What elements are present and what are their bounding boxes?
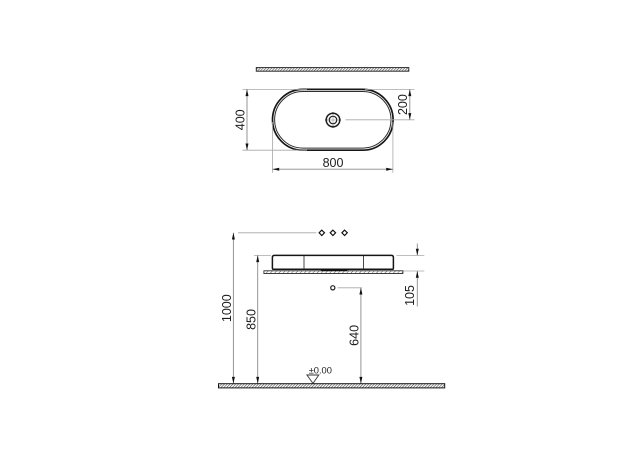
- svg-text:800: 800: [323, 156, 344, 170]
- svg-text:105: 105: [403, 285, 417, 306]
- svg-text:640: 640: [348, 325, 362, 346]
- svg-text:400: 400: [234, 109, 248, 130]
- svg-text:1000: 1000: [220, 294, 234, 322]
- svg-text:200: 200: [396, 94, 410, 115]
- svg-text:±0.00: ±0.00: [309, 365, 332, 375]
- svg-text:850: 850: [244, 309, 258, 330]
